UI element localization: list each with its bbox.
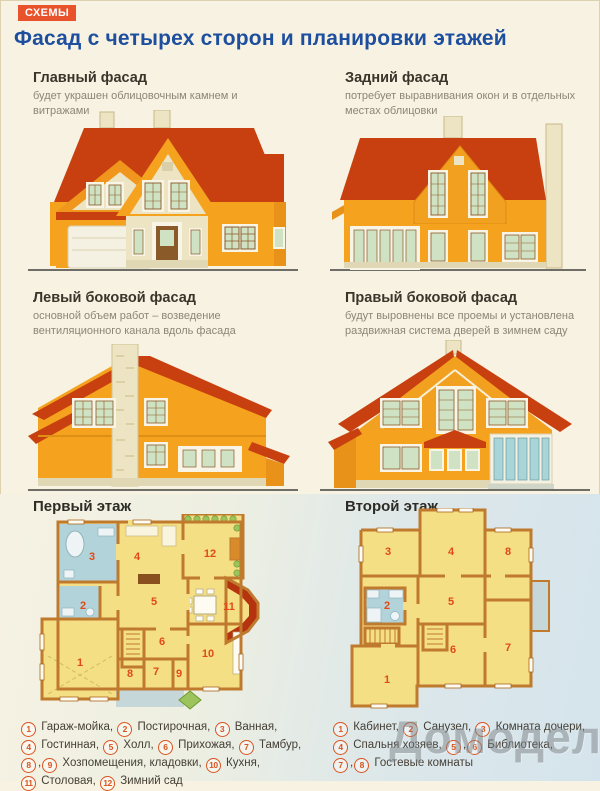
legend-item-label: Санузел,: [420, 721, 474, 733]
room-number: 1: [77, 657, 83, 669]
legend-number-badge: 8: [21, 758, 36, 773]
legend-number-badge: 2: [403, 722, 418, 737]
legend-number-badge: 9: [42, 758, 57, 773]
room-number: 3: [89, 551, 95, 563]
room-number: 6: [450, 644, 456, 656]
facade-label-left: Левый боковой фасад основной объем работ…: [33, 290, 311, 339]
legend-item-label: Кабинет,: [350, 721, 402, 733]
right-facade-drawing: [320, 340, 592, 498]
facade-desc-right: будут выровнены все проемы и установлена…: [345, 309, 593, 339]
second-floor-legend: 1 Кабинет, 2 Санузел, 3 Комната дочери, …: [332, 719, 594, 773]
room-number: 8: [127, 668, 133, 680]
legend-number-badge: 6: [467, 740, 482, 755]
facade-heading-front: Главный фасад: [33, 70, 295, 86]
legend-number-badge: 1: [333, 722, 348, 737]
first-floor-legend: 1 Гараж-мойка, 2 Постирочная, 3 Ванная, …: [20, 719, 325, 791]
room-number: 3: [385, 546, 391, 558]
room-number: 10: [202, 648, 214, 660]
legend-item-label: Зимний сад: [117, 775, 183, 787]
legend-number-badge: 2: [117, 722, 132, 737]
first-floor-heading: Первый этаж: [33, 498, 131, 515]
legend-item-label: Гараж-мойка,: [38, 721, 116, 733]
legend-item-label: Гостевые комнаты: [371, 757, 473, 769]
page-title: Фасад с четырех сторон и планировки этаж…: [14, 27, 507, 51]
room-number: 12: [204, 548, 216, 560]
legend-item-label: Постирочная,: [134, 721, 213, 733]
legend-number-badge: 7: [333, 758, 348, 773]
legend-number-badge: 7: [239, 740, 254, 755]
legend-number-badge: 1: [21, 722, 36, 737]
first-floor-plan: 1 2 3 4 5 6 7 8 9 10 11 12: [38, 514, 303, 714]
legend-number-badge: 5: [103, 740, 118, 755]
room-number: 2: [80, 600, 86, 612]
facade-label-right: Правый боковой фасад будут выровнены все…: [345, 290, 593, 339]
room-number: 5: [448, 596, 454, 608]
legend-item-label: Прихожая,: [175, 739, 238, 751]
facade-heading-left: Левый боковой фасад: [33, 290, 311, 306]
left-facade-drawing: [28, 344, 300, 496]
legend-item-label: Спальня хозяев,: [350, 739, 445, 751]
room-number: 5: [151, 596, 157, 608]
legend-number-badge: 4: [21, 740, 36, 755]
room-number: 4: [448, 546, 454, 558]
room-number: 11: [223, 601, 235, 613]
legend-item-label: Комната дочери,: [492, 721, 585, 733]
room-number: 1: [384, 674, 390, 686]
legend-number-badge: 3: [475, 722, 490, 737]
legend-number-badge: 8: [354, 758, 369, 773]
back-facade-drawing: [330, 116, 588, 278]
facade-label-back: Задний фасад потребует выравнивания окон…: [345, 70, 587, 119]
room-number: 7: [505, 642, 511, 654]
legend-item-label: Тамбур,: [256, 739, 301, 751]
legend-item-label: Хозпомещения, кладовки,: [59, 757, 205, 769]
legend-number-badge: 3: [215, 722, 230, 737]
legend-item-label: Холл,: [120, 739, 157, 751]
legend-number-badge: 5: [446, 740, 461, 755]
front-facade-drawing: [28, 110, 300, 278]
second-floor-plan: 1 2 3 4 5 6 7 8: [345, 508, 590, 713]
room-number: 4: [134, 551, 140, 563]
legend-number-badge: 12: [100, 776, 115, 791]
room-number: 8: [505, 546, 511, 558]
legend-number-badge: 4: [333, 740, 348, 755]
legend-item-label: Библиотека,: [484, 739, 553, 751]
facade-heading-right: Правый боковой фасад: [345, 290, 593, 306]
legend-item-label: Столовая,: [38, 775, 99, 787]
legend-number-badge: 6: [158, 740, 173, 755]
room-number: 6: [159, 636, 165, 648]
section-badge: СХЕМЫ: [18, 5, 76, 21]
room-number: 9: [176, 668, 182, 680]
room-number: 2: [384, 600, 390, 612]
facade-desc-left: основной объем работ – возведение вентил…: [33, 309, 311, 339]
room-number: 7: [153, 666, 159, 678]
legend-item-label: Гостинная,: [38, 739, 102, 751]
legend-number-badge: 11: [21, 776, 36, 791]
facade-heading-back: Задний фасад: [345, 70, 587, 86]
legend-item-label: Ванная,: [232, 721, 278, 733]
facade-desc-back: потребует выравнивания окон и в отдельны…: [345, 89, 587, 119]
legend-item-label: Кухня,: [223, 757, 260, 769]
legend-number-badge: 10: [206, 758, 221, 773]
